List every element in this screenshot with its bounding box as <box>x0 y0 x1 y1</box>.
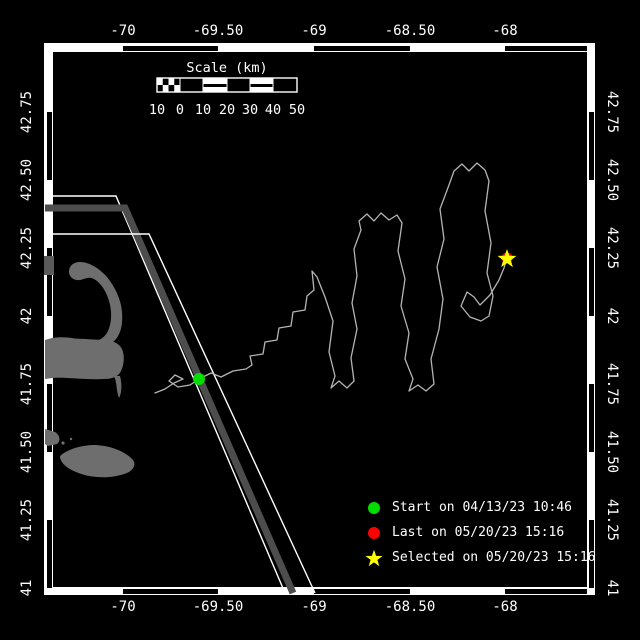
latitude-tick-label: 42 <box>20 308 34 325</box>
longitude-tick-label: -69.50 <box>193 24 244 38</box>
mainland-coast-fragment <box>44 256 54 275</box>
legend-label-selected: Selected on 05/20/23 15:16 <box>392 550 596 565</box>
latitude-tick-label: 42.75 <box>605 91 619 133</box>
latitude-tick-label: 42.50 <box>605 159 619 201</box>
track-legend: Start on 04/13/23 10:46 Last on 05/20/23… <box>364 499 596 574</box>
legend-row-selected: Selected on 05/20/23 15:16 <box>364 549 596 566</box>
latitude-tick-label: 41 <box>605 580 619 597</box>
latitude-tick-label: 42.50 <box>20 159 34 201</box>
latitude-tick-label: 41.75 <box>605 363 619 405</box>
latitude-tick-label: 42 <box>605 308 619 325</box>
legend-label-last: Last on 05/20/23 15:16 <box>392 525 564 540</box>
latitude-tick-label: 41.25 <box>605 499 619 541</box>
longitude-tick-label: -68 <box>492 24 517 38</box>
start-dot-icon <box>364 498 384 518</box>
longitude-tick-label: -68 <box>492 600 517 614</box>
latitude-tick-label: 41.75 <box>20 363 34 405</box>
longitude-tick-label: -68.50 <box>385 600 436 614</box>
latitude-tick-label: 41 <box>20 580 34 597</box>
latitude-tick-label: 42.25 <box>605 227 619 269</box>
map-viewer: -70-69.50-69-68.50-68 -70-69.50-69-68.50… <box>0 0 640 640</box>
longitude-tick-label: -70 <box>110 24 135 38</box>
longitude-tick-label: -69 <box>301 600 326 614</box>
latitude-tick-label: 42.25 <box>20 227 34 269</box>
latitude-tick-label: 42.75 <box>20 91 34 133</box>
legend-label-start: Start on 04/13/23 10:46 <box>392 500 572 515</box>
latitude-tick-label: 41.50 <box>20 431 34 473</box>
longitude-tick-label: -70 <box>110 600 135 614</box>
latitude-tick-label: 41.50 <box>605 431 619 473</box>
map-frame-band-left <box>45 44 53 594</box>
longitude-tick-label: -69 <box>301 24 326 38</box>
selected-star-icon <box>364 548 384 568</box>
legend-row-start: Start on 04/13/23 10:46 <box>364 499 596 516</box>
legend-row-last: Last on 05/20/23 15:16 <box>364 524 596 541</box>
longitude-tick-label: -69.50 <box>193 600 244 614</box>
map-frame-band-top <box>45 44 595 52</box>
map-frame-band-bottom <box>45 587 595 595</box>
longitude-tick-label: -68.50 <box>385 24 436 38</box>
latitude-tick-label: 41.25 <box>20 499 34 541</box>
last-dot-icon <box>364 523 384 543</box>
